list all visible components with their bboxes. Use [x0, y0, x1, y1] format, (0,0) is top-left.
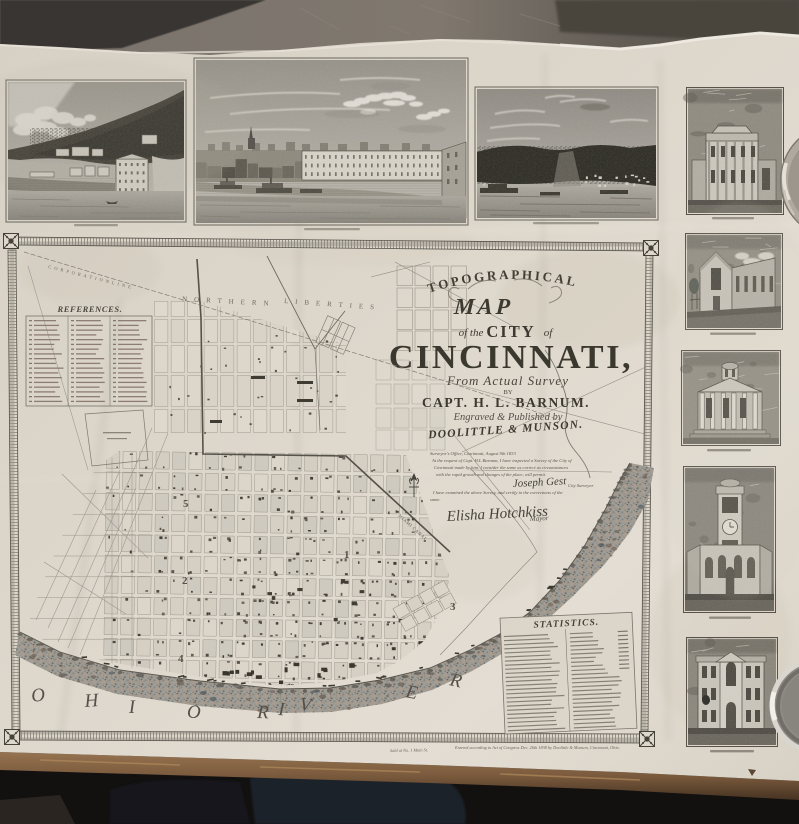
svg-text:1: 1	[344, 549, 350, 561]
svg-text:of the: of the	[459, 327, 484, 339]
svg-text:Cincinnati made by him. I con: Cincinnati made by him. I consider the s…	[434, 465, 568, 470]
svg-text:5: 5	[183, 498, 189, 510]
svg-text:From Actual Survey: From Actual Survey	[446, 373, 569, 388]
svg-text:same.: same.	[430, 497, 441, 502]
svg-text:R: R	[256, 702, 270, 723]
svg-text:H: H	[83, 690, 100, 712]
svg-text:2: 2	[182, 575, 188, 587]
svg-text:O: O	[30, 684, 46, 707]
svg-text:CAPT. H. L. BARNUM.: CAPT. H. L. BARNUM.	[422, 395, 590, 410]
svg-text:O: O	[187, 702, 201, 723]
svg-text:City Surveyor: City Surveyor	[568, 483, 594, 488]
svg-text:Sold at No. 1 Main St.: Sold at No. 1 Main St.	[390, 747, 428, 753]
svg-text:MAP: MAP	[452, 293, 514, 319]
svg-text:3: 3	[450, 601, 456, 613]
svg-text:Mayor: Mayor	[529, 514, 549, 523]
svg-text:REFERENCES.: REFERENCES.	[57, 304, 123, 314]
svg-text:CINCINNATI,: CINCINNATI,	[389, 339, 633, 376]
svg-text:4: 4	[178, 653, 184, 665]
